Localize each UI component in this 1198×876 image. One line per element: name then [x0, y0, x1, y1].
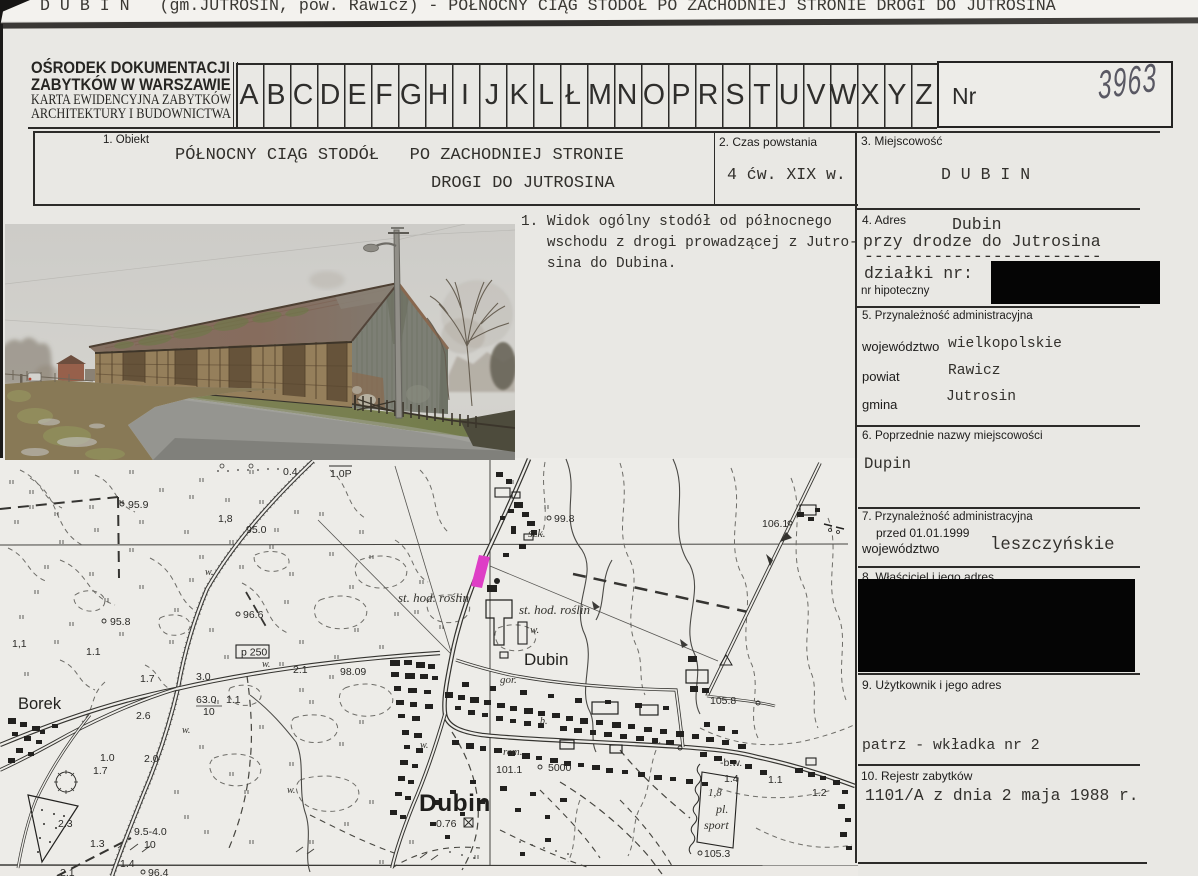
svg-text:Borek: Borek	[18, 695, 62, 713]
svg-text:pl.: pl.	[715, 802, 728, 816]
svg-text:0.4: 0.4	[283, 466, 298, 478]
svg-text:1,8: 1,8	[218, 513, 233, 525]
svg-text:1.1: 1.1	[226, 694, 241, 706]
svg-text:st. hod. roślin: st. hod. roślin	[398, 590, 469, 605]
svg-text:w.: w.	[262, 659, 270, 670]
svg-text:szk.: szk.	[528, 526, 546, 540]
svg-text:st. hod. roślin: st. hod. roślin	[519, 602, 590, 617]
svg-text:95.8: 95.8	[110, 616, 131, 628]
svg-text:Dubin: Dubin	[419, 790, 491, 817]
svg-text:99.8: 99.8	[554, 513, 575, 525]
svg-text:-b.w.: -b.w.	[720, 757, 742, 769]
svg-text:2.6: 2.6	[136, 710, 151, 722]
svg-text:1.3: 1.3	[90, 838, 105, 850]
svg-text:101.1: 101.1	[496, 764, 522, 776]
svg-text:10: 10	[144, 839, 156, 851]
svg-text:1.0: 1.0	[100, 752, 115, 764]
svg-text:sport: sport	[704, 818, 729, 832]
svg-text:rem.: rem.	[503, 746, 522, 758]
svg-text:0.76: 0.76	[436, 818, 457, 830]
svg-text:p 250: p 250	[241, 647, 267, 659]
svg-text:5000: 5000	[548, 762, 572, 774]
svg-text:2.0: 2.0	[144, 753, 159, 765]
svg-text:3.0: 3.0	[196, 671, 211, 683]
svg-text:1.7: 1.7	[140, 673, 155, 685]
svg-text:1.4: 1.4	[724, 773, 739, 785]
svg-text:96.6: 96.6	[243, 609, 264, 621]
svg-text:w.: w.	[287, 785, 295, 796]
svg-text:Dubin: Dubin	[524, 650, 568, 669]
svg-text:98.09: 98.09	[340, 666, 366, 678]
svg-text:9.5-4.0: 9.5-4.0	[134, 826, 167, 838]
svg-text:105.8: 105.8	[710, 695, 736, 707]
svg-text:106.1: 106.1	[762, 518, 788, 530]
svg-text:1.2: 1.2	[812, 787, 827, 799]
svg-text:95.9: 95.9	[128, 499, 149, 511]
svg-text:b.: b.	[540, 716, 548, 727]
svg-text:1.1: 1.1	[768, 774, 783, 786]
svg-text:1,8: 1,8	[708, 787, 722, 799]
svg-text:1.0P: 1.0P	[330, 468, 352, 480]
svg-text:1.7: 1.7	[93, 765, 108, 777]
svg-text:1,1: 1,1	[12, 638, 27, 650]
svg-text:63.0: 63.0	[196, 694, 217, 706]
svg-text:2.3: 2.3	[58, 818, 73, 830]
svg-text:w.: w.	[182, 725, 190, 736]
svg-text:w.: w.	[420, 740, 428, 751]
svg-text:105.3: 105.3	[704, 848, 730, 860]
svg-text:1.4: 1.4	[120, 858, 135, 870]
svg-text:10: 10	[203, 706, 215, 718]
svg-text:96.4: 96.4	[148, 867, 169, 876]
svg-text:w.: w.	[205, 567, 213, 578]
svg-text:w.: w.	[530, 624, 539, 636]
svg-text:95.0: 95.0	[246, 524, 267, 536]
svg-text:2.1: 2.1	[60, 867, 75, 876]
svg-text:gor.: gor.	[500, 674, 517, 686]
svg-text:2.1: 2.1	[293, 664, 308, 676]
svg-text:1.1: 1.1	[86, 646, 101, 658]
